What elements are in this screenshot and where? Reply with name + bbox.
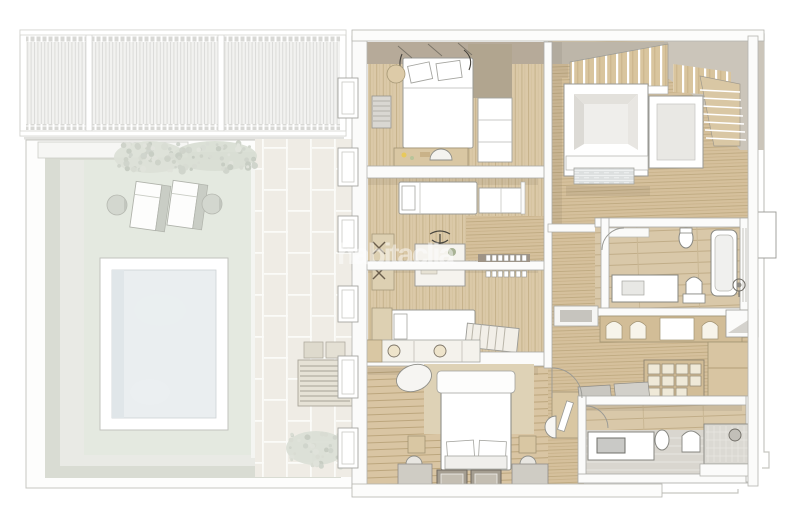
svg-text:habitaclia: habitaclia	[337, 238, 455, 271]
